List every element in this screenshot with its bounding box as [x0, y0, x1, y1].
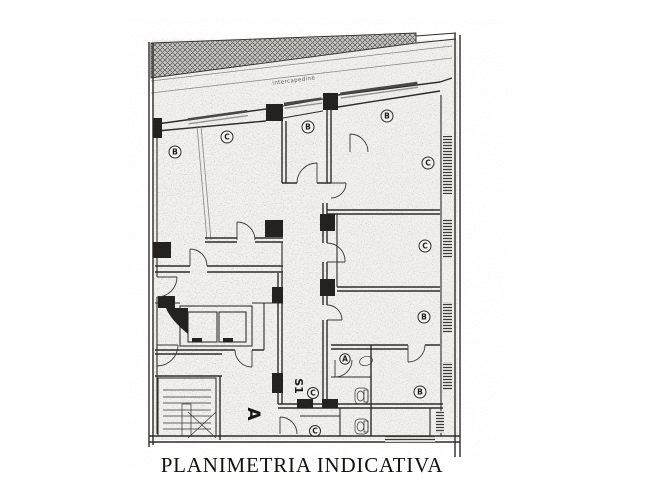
scan-grain: [128, 18, 508, 468]
floor-plan-drawing: intercapedine: [0, 0, 650, 487]
caption-title: PLANIMETRIA INDICATIVA: [161, 453, 444, 478]
scanned-floorplan-page: intercapedine: [0, 0, 650, 487]
